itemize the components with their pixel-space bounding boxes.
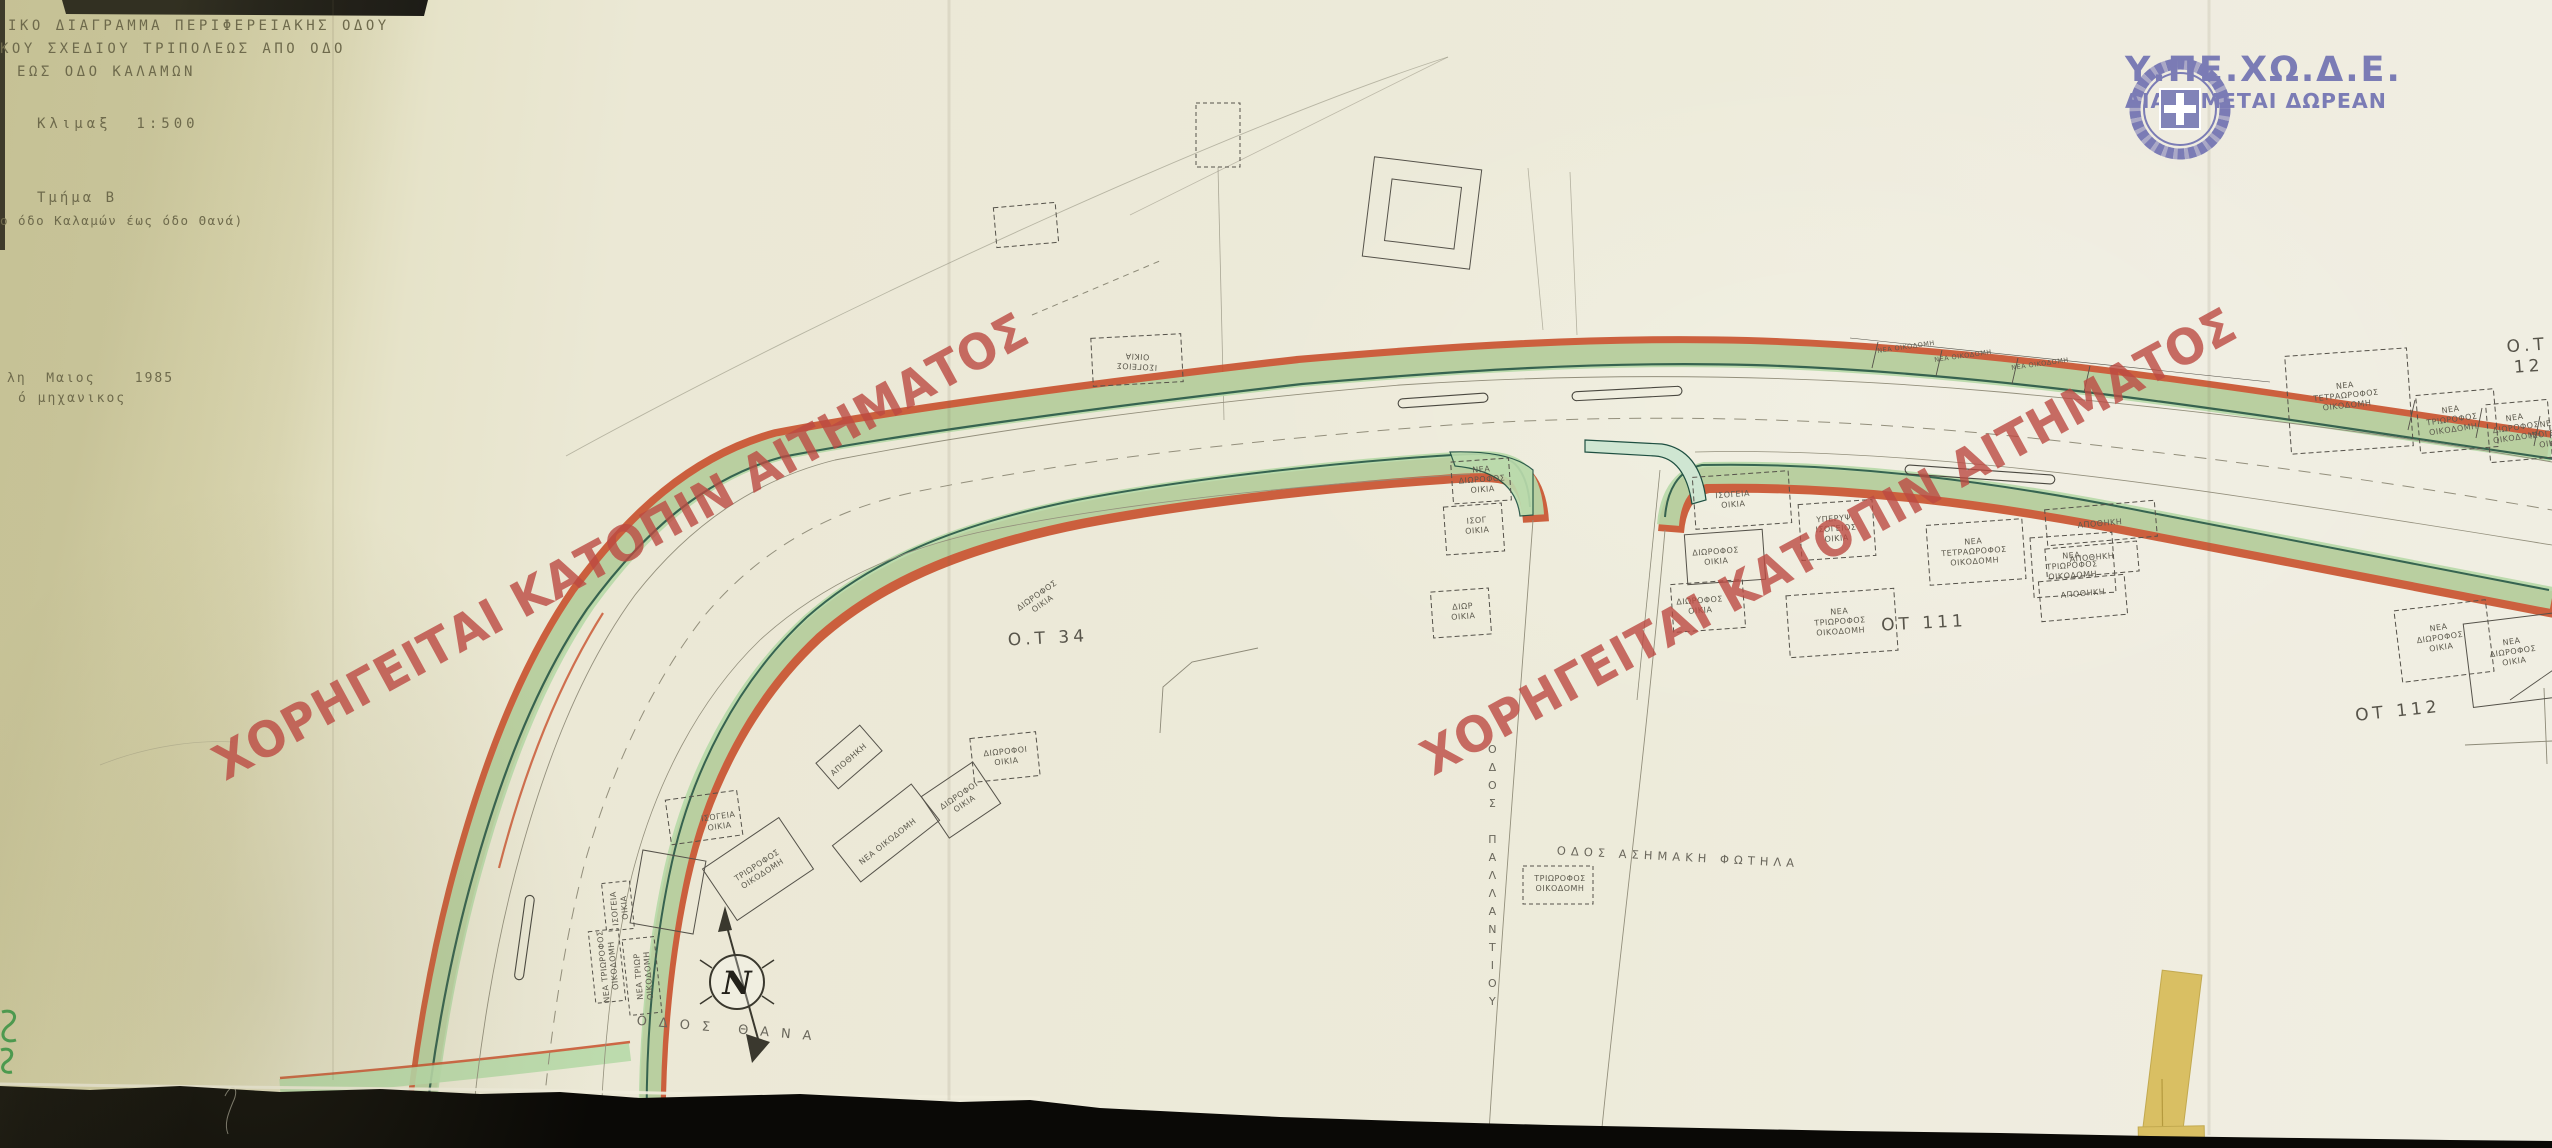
repair-tape — [2136, 970, 2224, 1148]
signature-line: ό μηχανικος — [18, 391, 126, 406]
building-label: ΙΣΟΓΕΙΟΣ ΟΙΚΙΑ — [1116, 350, 1158, 372]
building-label: ΝΕΑ ΤΡΙΩΡΟΦΟΣ ΟΙΚΟΔΟΜΗ — [1813, 605, 1866, 639]
green-scribble — [1, 1011, 16, 1072]
title-line-2: ΚΟΥ ΣΧΕΔΙΟΥ ΤΡΙΠΟΛΕΩΣ ΑΠΟ ΟΔΟ — [0, 41, 346, 57]
north-label: N — [721, 964, 753, 1002]
building-label: ΝΕΑ ΤΡΙΩΡ ΟΙΚΟΔΟΜΗ — [632, 951, 656, 1001]
building-label: ΤΡΙΩΡΟΦΟΣ ΟΙΚΟΔΟΜΗ — [1534, 874, 1585, 894]
road-lower-verge-left — [647, 454, 1536, 1148]
title-line-3: ΕΩΣ ΟΔΟ ΚΑΛΑΜΩΝ — [17, 64, 196, 80]
building-label: ΙΣΟΓΕΙΑ ΟΙΚΙΑ — [609, 890, 632, 926]
block-label-ot34: Ο.Τ 34 — [1007, 626, 1088, 651]
ministry-logo: Υ.ΠΕ.ΧΩ.Δ.Ε. ΔΙΑΝΕΜΕΤΑΙ ΔΩΡΕΑΝ — [2125, 52, 2402, 113]
wreath-cross-emblem-icon — [2125, 52, 2235, 164]
map-drawing: N — [0, 0, 2552, 1148]
block-label-ot12: Ο.Τ 12 — [2506, 334, 2550, 379]
date-line: λη Μαιος 1985 — [7, 371, 174, 386]
section-label: Τμήμα Β — [37, 190, 117, 206]
building-label: ΝΕΑ ΙΣΟΓΕΙΟΣ ΟΙΚΙΑ — [2528, 416, 2552, 451]
building-label: ΔΙΩΡ ΟΙΚΙΑ — [1450, 601, 1476, 623]
scale-label: Κλιμαξ 1:500 — [37, 116, 199, 132]
scanned-map-sheet: N ΙΚΟ ΔΙΑΓΡΑΜΜΑ ΠΕΡΙΦΕΡΕΙΑΚ — [0, 0, 2552, 1148]
building-label: ΙΣΟΓ ΟΙΚΙΑ — [1464, 515, 1490, 537]
building-label: ΝΕΑ ΔΙΩΡΟΦΟΣ ΟΙΚΙΑ — [1458, 463, 1507, 496]
street-label-pallantiou: ΟΔΟΣ ΠΑΛΛΑΝΤΙΟΥ — [1485, 743, 1499, 1013]
building-label: ΝΕΑ ΤΕΤΡΑΩΡΟΦΟΣ ΟΙΚΟΔΟΜΗ — [1940, 535, 2007, 569]
block-label-ot111: ΟΤ 111 — [1881, 611, 1968, 637]
section-note: ο όδο Καλαμών έως όδο Θανά) — [0, 213, 244, 228]
title-line-1: ΙΚΟ ΔΙΑΓΡΑΜΜΑ ΠΕΡΙΦΕΡΕΙΑΚΗΣ ΟΔΟΥ — [8, 18, 390, 34]
building-label: ΙΣΟΓΕΙΑ ΟΙΚΙΑ — [1715, 489, 1751, 511]
